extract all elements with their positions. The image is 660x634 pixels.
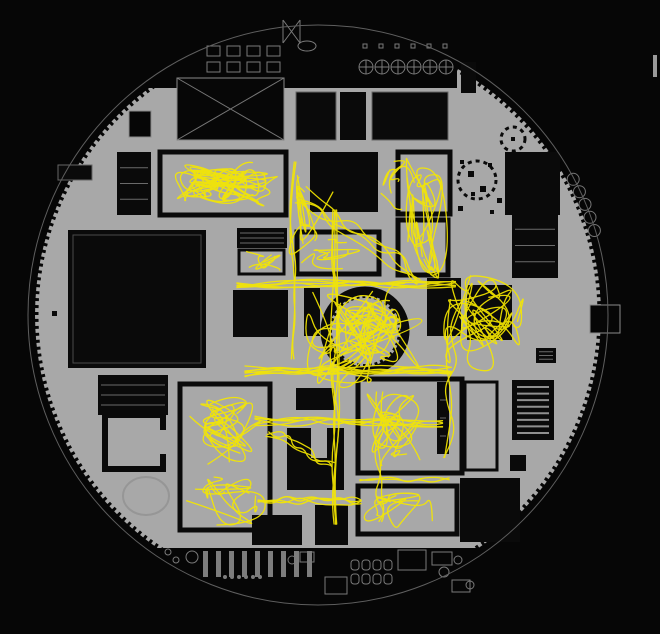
dot [230,575,234,579]
tree-dot [511,137,515,141]
room-block [340,92,366,140]
shelf-bar [203,551,208,577]
tree-dot [471,192,475,196]
c-room-gap [155,430,167,454]
shelf-bar [229,551,234,577]
shelf-bar [307,551,312,577]
room-block [68,230,206,368]
shelf-bar [255,551,260,577]
tree-dot [490,210,494,214]
room-block [510,455,526,471]
room-block [460,478,520,542]
rim-scallop [573,186,585,198]
room-block [52,311,57,316]
room-block [372,92,448,140]
room-block [252,515,302,545]
room-block [233,290,288,337]
room-block [505,152,560,215]
dot [244,575,248,579]
outlined-box [590,305,620,333]
shelf-bar [242,551,247,577]
louver-block [512,380,554,440]
tree-dot [488,163,492,167]
room-block [310,152,378,212]
top-band [0,0,457,88]
shelf-bar [268,551,273,577]
room-block [296,92,336,140]
rim-scallop [567,173,579,185]
floor-plan-svg [0,0,660,634]
shelf-bar [294,551,299,577]
dot [251,575,255,579]
tree-dot [480,186,486,192]
gray-mark [653,55,657,77]
dot [258,575,262,579]
outlined-box [129,111,151,137]
tree-dot [497,198,502,203]
tree-dot [458,206,463,211]
dot [237,575,241,579]
tree-dot [468,171,474,177]
floor-plan-canvas [0,0,660,634]
bottom-band [0,548,660,634]
dot [223,575,227,579]
room-block [315,505,348,545]
room-block [296,388,334,410]
tree-dot [460,160,464,164]
rim-scallop [579,198,591,210]
shelf-bar [281,551,286,577]
shelf-bar [216,551,221,577]
